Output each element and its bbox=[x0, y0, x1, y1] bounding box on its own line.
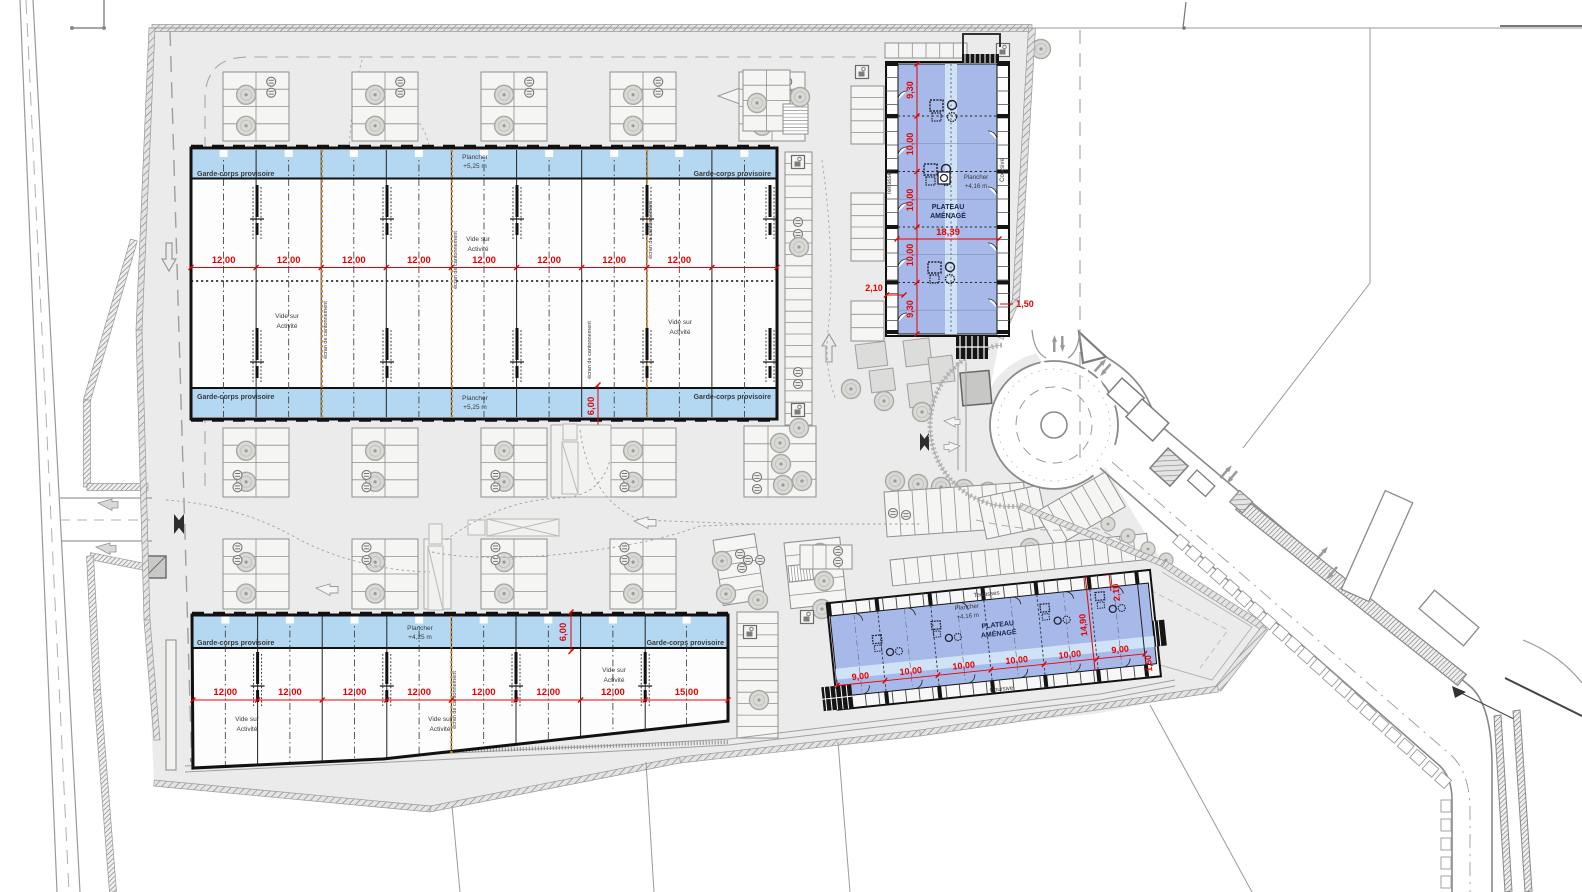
svg-text:12,00: 12,00 bbox=[212, 255, 236, 266]
svg-text:Garde-corps provisoire: Garde-corps provisoire bbox=[694, 394, 772, 401]
svg-text:12,00: 12,00 bbox=[407, 255, 431, 266]
svg-text:6,00: 6,00 bbox=[558, 623, 569, 642]
svg-text:Garde-corps provisoire: Garde-corps provisoire bbox=[197, 171, 275, 178]
svg-text:12,00: 12,00 bbox=[537, 255, 561, 266]
svg-text:10,00: 10,00 bbox=[905, 244, 915, 267]
svg-text:Plancher: Plancher bbox=[964, 174, 988, 181]
svg-text:PLATEAU: PLATEAU bbox=[932, 204, 965, 211]
svg-text:écran de cantonnement: écran de cantonnement bbox=[323, 301, 329, 359]
svg-text:Garde-corps provisoire: Garde-corps provisoire bbox=[197, 640, 275, 647]
svg-text:12,00: 12,00 bbox=[667, 255, 691, 266]
svg-text:+5,25 m: +5,25 m bbox=[463, 404, 487, 411]
svg-text:Plancher: Plancher bbox=[462, 395, 488, 402]
svg-text:12,00: 12,00 bbox=[407, 687, 431, 698]
svg-text:12,00: 12,00 bbox=[601, 687, 625, 698]
svg-text:Terrasses: Terrasses bbox=[887, 169, 893, 195]
svg-text:AMÉNAGÉ: AMÉNAGÉ bbox=[930, 211, 966, 220]
svg-text:9,00: 9,00 bbox=[851, 670, 869, 682]
svg-text:1,50: 1,50 bbox=[1143, 654, 1155, 672]
svg-text:18,39: 18,39 bbox=[936, 227, 960, 238]
svg-text:Coursive: Coursive bbox=[1000, 158, 1006, 182]
svg-text:Vide sur: Vide sur bbox=[602, 667, 627, 674]
svg-text:12,00: 12,00 bbox=[277, 255, 301, 266]
svg-text:9,30: 9,30 bbox=[905, 81, 915, 99]
svg-text:Plancher: Plancher bbox=[462, 154, 488, 161]
svg-text:6,00: 6,00 bbox=[586, 397, 597, 416]
svg-text:Vide sur: Vide sur bbox=[428, 716, 453, 723]
svg-text:12,00: 12,00 bbox=[472, 687, 496, 698]
svg-text:Activité: Activité bbox=[468, 246, 489, 253]
svg-text:12,00: 12,00 bbox=[278, 687, 302, 698]
svg-text:12,00: 12,00 bbox=[602, 255, 626, 266]
svg-text:10,00: 10,00 bbox=[905, 189, 915, 212]
svg-text:15,00: 15,00 bbox=[675, 687, 699, 698]
svg-text:Garde-corps provisoire: Garde-corps provisoire bbox=[197, 394, 275, 401]
svg-text:10,00: 10,00 bbox=[905, 133, 915, 156]
svg-text:Activité: Activité bbox=[430, 726, 451, 733]
svg-text:+4,16 m: +4,16 m bbox=[965, 183, 988, 190]
svg-text:12,00: 12,00 bbox=[342, 255, 366, 266]
svg-text:9,30: 9,30 bbox=[905, 300, 915, 318]
svg-text:2,10: 2,10 bbox=[865, 283, 883, 293]
svg-text:Plancher: Plancher bbox=[407, 625, 433, 632]
svg-text:écran de cantonnement: écran de cantonnement bbox=[453, 231, 459, 289]
svg-text:Vide sur: Vide sur bbox=[668, 319, 693, 326]
svg-text:12,00: 12,00 bbox=[343, 687, 367, 698]
svg-text:Activité: Activité bbox=[237, 726, 258, 733]
svg-text:12,00: 12,00 bbox=[213, 687, 237, 698]
svg-text:Activité: Activité bbox=[604, 677, 625, 684]
svg-text:écran de cantonnement: écran de cantonnement bbox=[587, 321, 593, 379]
svg-text:+4,25 m: +4,25 m bbox=[408, 634, 432, 641]
svg-text:Garde-corps provisoire: Garde-corps provisoire bbox=[694, 171, 772, 178]
svg-text:Vide sur: Vide sur bbox=[466, 236, 491, 243]
svg-text:12,00: 12,00 bbox=[472, 255, 496, 266]
svg-text:Garde-corps provisoire: Garde-corps provisoire bbox=[647, 640, 725, 647]
svg-text:+5,25 m: +5,25 m bbox=[463, 163, 487, 170]
svg-text:Activité: Activité bbox=[277, 323, 298, 330]
svg-text:Vide sur: Vide sur bbox=[235, 716, 260, 723]
svg-text:2,10: 2,10 bbox=[1110, 583, 1122, 601]
svg-text:1,50: 1,50 bbox=[1016, 299, 1034, 309]
svg-text:9,00: 9,00 bbox=[1111, 643, 1129, 655]
svg-text:12,00: 12,00 bbox=[536, 687, 560, 698]
svg-text:Activité: Activité bbox=[670, 329, 691, 336]
svg-text:Vide sur: Vide sur bbox=[275, 313, 300, 320]
